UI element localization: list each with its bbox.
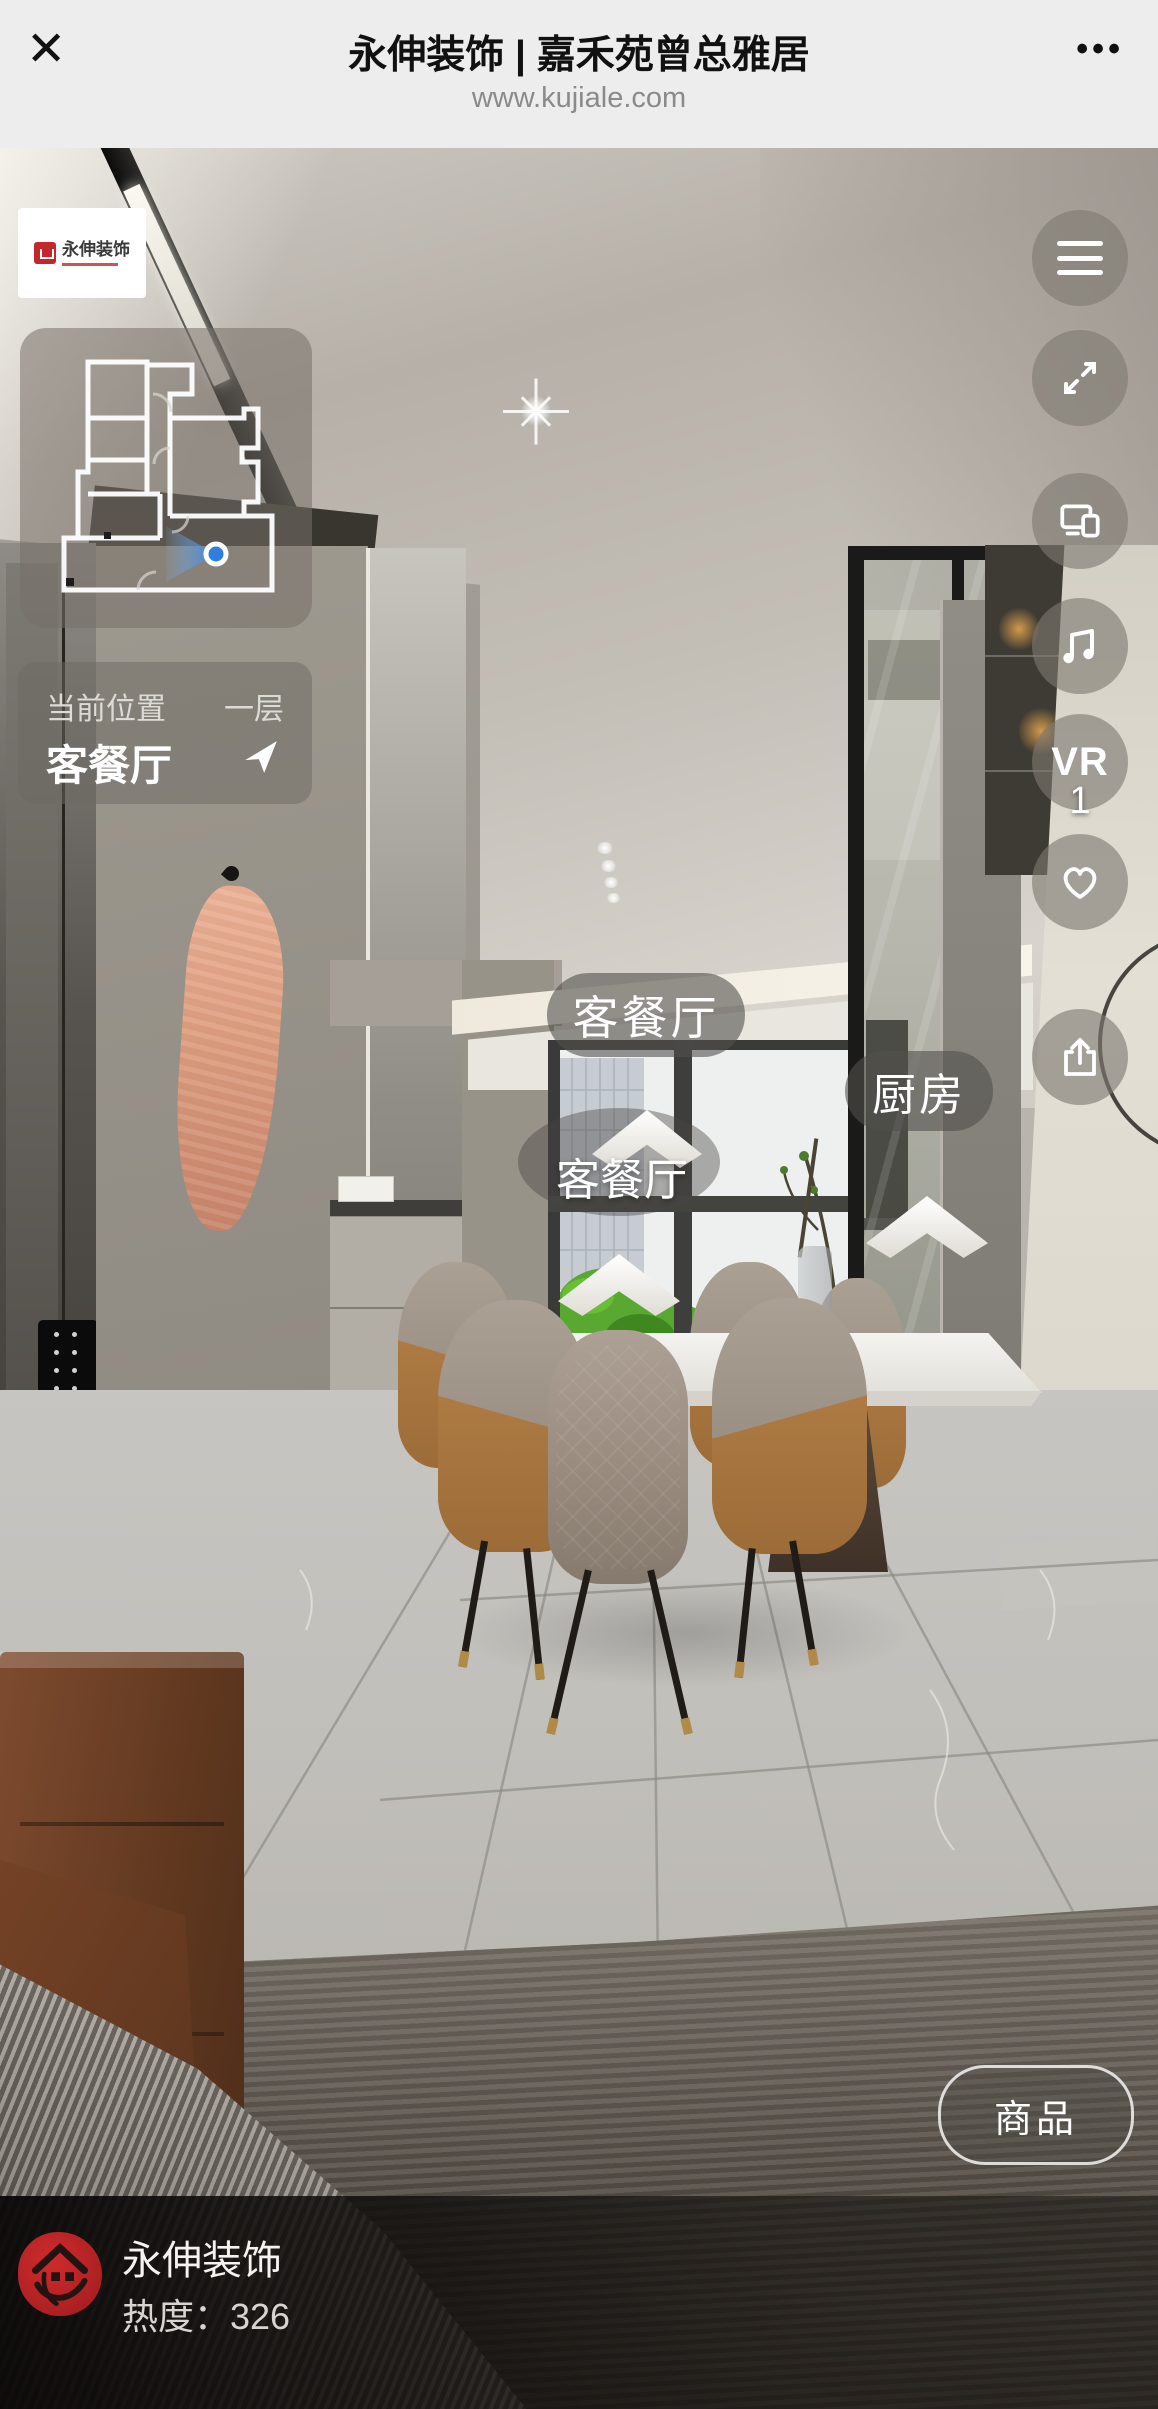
music-button[interactable] <box>1032 598 1128 694</box>
more-menu-icon[interactable]: ••• <box>1076 30 1124 69</box>
brand-logo-subtitle-bar <box>62 263 118 266</box>
studio-name: 永伸装饰 <box>122 2228 282 2286</box>
share-button[interactable] <box>1032 1009 1128 1105</box>
dining-chair <box>712 1298 867 1554</box>
front-dining-chair <box>548 1330 688 1584</box>
location-panel[interactable]: 当前位置 一层 客餐厅 <box>18 662 312 804</box>
hotspot-label-living[interactable]: 客餐厅 <box>547 973 745 1057</box>
brand-logo-card[interactable]: 永伸装饰 <box>18 208 146 298</box>
viewer-stage: 客餐厅 厨房 客餐厅 永伸装饰 <box>0 0 1158 2409</box>
floorplan-drawing <box>20 328 312 628</box>
ceiling-light-dot <box>596 842 614 854</box>
heat-stat: 热度：326 <box>122 2288 290 2340</box>
ceiling-light-dot <box>606 893 621 903</box>
ceiling-light-dot <box>603 877 619 888</box>
like-count: 1 <box>1032 780 1128 823</box>
brand-logo-text: 永伸装饰 <box>62 240 130 260</box>
mini-floorplan[interactable] <box>20 328 312 628</box>
heart-icon <box>1056 858 1104 906</box>
products-button[interactable]: 商品 <box>938 2065 1134 2165</box>
expand-icon <box>1056 354 1104 402</box>
countertop <box>330 1200 480 1216</box>
studio-stamp-logo[interactable] <box>18 2232 102 2316</box>
locate-arrow-icon[interactable] <box>242 738 280 776</box>
ceiling-light-dot <box>600 860 617 872</box>
fullscreen-button[interactable] <box>1032 330 1128 426</box>
device-switch-button[interactable] <box>1032 473 1128 569</box>
like-button[interactable] <box>1032 834 1128 930</box>
page-title: 永伸装饰 | 嘉禾苑曾总雅居 <box>0 24 1158 80</box>
footer-bar: 永伸装饰 热度：326 <box>0 2196 1158 2409</box>
menu-icon <box>1057 241 1103 275</box>
wechat-header: ✕ 永伸装饰 | 嘉禾苑曾总雅居 www.kujiale.com ••• <box>0 0 1158 148</box>
menu-button[interactable] <box>1032 210 1128 306</box>
hotspot-walk-label[interactable]: 客餐厅 <box>540 1144 704 1208</box>
devices-icon <box>1055 496 1105 546</box>
music-note-icon <box>1056 622 1104 670</box>
floor-selector[interactable]: 一层 <box>224 684 284 728</box>
hotspot-label-kitchen[interactable]: 厨房 <box>845 1051 993 1131</box>
page-url: www.kujiale.com <box>0 82 1158 115</box>
camera-direction-cone <box>166 526 226 582</box>
stamp-house-icon <box>18 2232 102 2316</box>
decor-books <box>338 1176 394 1202</box>
current-room: 客餐厅 <box>46 732 172 793</box>
furniture-shadow <box>455 1578 915 1688</box>
vr-label: VR <box>1051 740 1109 785</box>
location-label: 当前位置 <box>46 684 166 728</box>
share-icon <box>1056 1033 1104 1081</box>
brand-logo-icon <box>34 242 56 264</box>
